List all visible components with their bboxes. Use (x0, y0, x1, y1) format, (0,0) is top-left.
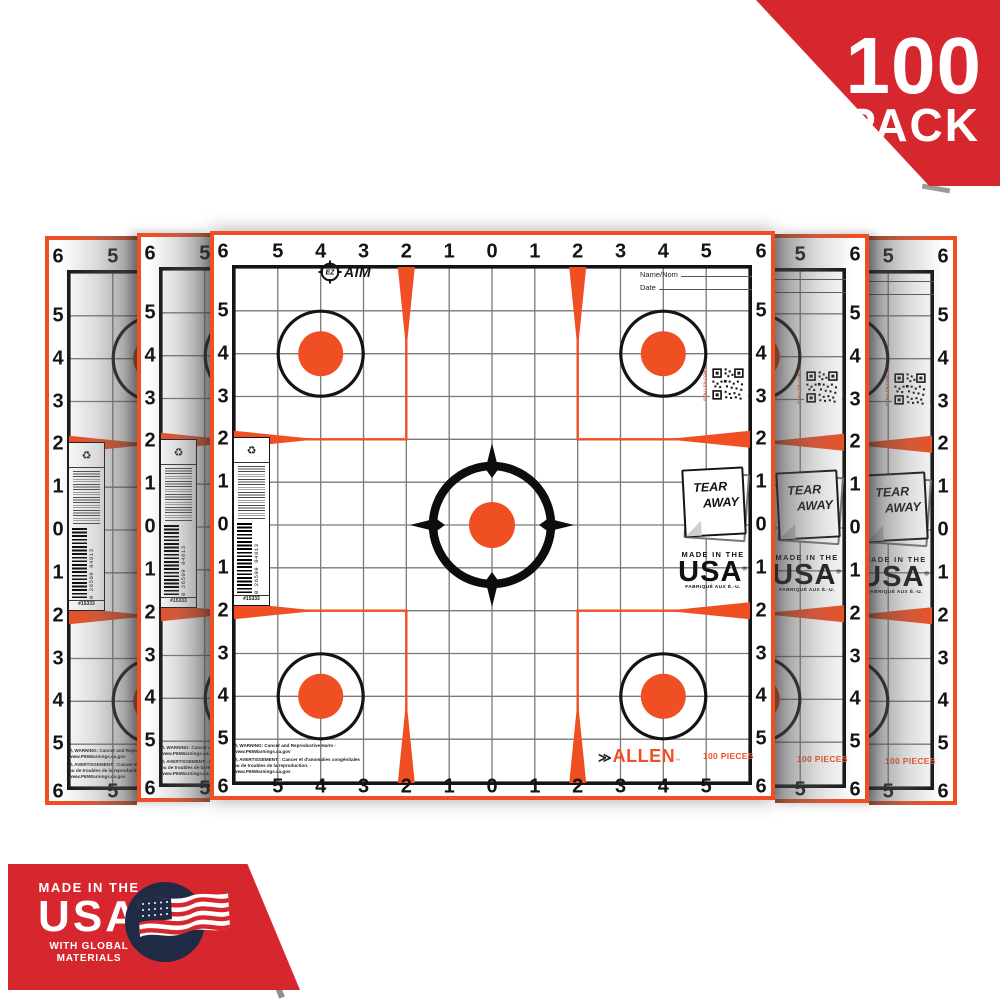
tear-away-graphic: TEAR AWAY (681, 466, 747, 538)
ruler-number: 5 (144, 730, 155, 753)
ruler-number: 3 (937, 647, 948, 670)
fine-print-block (73, 471, 100, 525)
ruler-number: 6 (52, 781, 63, 804)
pack-count: 100 (846, 26, 982, 106)
usa-text: USA (678, 556, 742, 588)
name-field-line (775, 279, 846, 280)
date-field-line (659, 289, 752, 290)
made-in-usa-block: MADE IN THE USA® FABRIQUÉ AUX É.-U. (869, 555, 934, 595)
barcode-label: ♻ 0 26509 04813 #15333 (233, 437, 270, 606)
barcode-icon (237, 523, 252, 594)
ruler-number: 2 (572, 241, 583, 264)
ruler-number: 2 (217, 599, 228, 622)
ruler-number: 1 (849, 559, 860, 582)
ruler-number: 5 (883, 246, 894, 269)
ruler-number: 1 (52, 476, 63, 499)
ruler-number: 2 (572, 776, 583, 799)
tear-away-front-page: TEAR AWAY (681, 466, 746, 537)
ruler-number: 4 (217, 342, 228, 365)
sheet-back-left-outer: EZ AIM Name/Nom Date ♻ 0 26509 04813 #15… (45, 236, 137, 805)
sheet-back-right-inner: EZ AIM Name/Nom Date ♻ 0 26509 04813 #15… (869, 236, 957, 805)
barcode-icon (72, 528, 87, 599)
allen-logo: ≫ ALLEN ™ (598, 746, 680, 767)
ruler-number: 6 (52, 246, 63, 269)
ruler-number: 5 (107, 781, 118, 804)
tear-away-graphic: TEAR AWAY (869, 471, 929, 543)
ruler-number: 5 (849, 731, 860, 754)
ruler-number: 1 (144, 473, 155, 496)
ruler-number: 5 (795, 244, 806, 267)
name-field-line (869, 281, 934, 282)
pack-count-badge: 100 PACK (756, 0, 1000, 186)
ruler-number: 4 (52, 690, 63, 713)
made-in-usa-block: MADE IN THE USA® FABRIQUÉ AUX É.-U. (674, 550, 752, 590)
date-field-label: Date (640, 283, 656, 292)
qr-code-icon (710, 366, 748, 404)
ruler-number: 0 (486, 776, 497, 799)
ruler-number: 2 (401, 241, 412, 264)
ruler-number: 3 (358, 776, 369, 799)
warning-block: ⚠ WARNING: Cancer and Reproductive Harm … (161, 745, 210, 779)
warning-block: ⚠ WARNING: Cancer and Reproductive Harm … (69, 748, 137, 782)
barcode-digits: 0 26509 04813 (88, 528, 95, 599)
ruler-number: 4 (937, 690, 948, 713)
ruler-number: 3 (217, 642, 228, 665)
product-image: 100 PACK MADE IN THE USA WITH GLOBAL MAT… (0, 0, 1000, 1000)
ruler-number: 5 (937, 733, 948, 756)
usa-reg-mark: ® (742, 566, 747, 572)
ruler-number: 1 (217, 471, 228, 494)
ruler-number: 1 (529, 776, 540, 799)
pieces-count-label: 100 PIECES (797, 754, 848, 764)
page-curl-icon (869, 526, 884, 542)
item-number: #15333 (69, 600, 104, 610)
aim-text: AIM (344, 264, 371, 280)
ruler-number: 3 (358, 241, 369, 264)
ruler-number: 6 (217, 776, 228, 799)
warning-text-fr: ⚠ AVERTISSEMENT : Cancer et d'anomalies … (161, 759, 210, 777)
ruler-number: 2 (937, 604, 948, 627)
ruler-number: 3 (755, 385, 766, 408)
ruler-number: 5 (701, 776, 712, 799)
page-curl-icon (779, 524, 796, 540)
ruler-number: 3 (755, 642, 766, 665)
ruler-number: 1 (755, 471, 766, 494)
ruler-number: 2 (217, 428, 228, 451)
ruler-number: 1 (52, 561, 63, 584)
usa-text: USA (869, 561, 924, 593)
ruler-number: 2 (144, 601, 155, 624)
ruler-number: 0 (144, 516, 155, 539)
usa-text: USA (775, 559, 836, 591)
ruler-number: 3 (144, 644, 155, 667)
page-curl-icon (685, 521, 702, 537)
ruler-number: 5 (937, 304, 948, 327)
ruler-number: 4 (849, 345, 860, 368)
ruler-number: 2 (849, 431, 860, 454)
ruler-number: 1 (937, 476, 948, 499)
tear-away-text-2: AWAY (797, 497, 838, 515)
warning-text-en: ⚠ WARNING: Cancer and Reproductive Harm … (69, 748, 137, 760)
name-date-fields: Name/Nom Date (640, 266, 754, 292)
ruler-number: 1 (529, 241, 540, 264)
ruler-number: 4 (849, 688, 860, 711)
warning-text-en: ⚠ WARNING: Cancer and Reproductive Harm … (234, 743, 362, 755)
ruler-number: 3 (615, 776, 626, 799)
usa-reg-mark: ® (924, 571, 929, 577)
ruler-number: 1 (755, 556, 766, 579)
ruler-number: 4 (315, 241, 326, 264)
warning-block: ⚠ WARNING: Cancer and Reproductive Harm … (234, 743, 362, 777)
qr-caption: BYALLEN.COM (703, 370, 707, 401)
ruler-number: 2 (52, 604, 63, 627)
made-in-usa-block: MADE IN THE USA® FABRIQUÉ AUX É.-U. (775, 553, 846, 593)
ruler-number: 2 (144, 430, 155, 453)
ruler-number: 4 (144, 344, 155, 367)
ruler-number: 6 (755, 776, 766, 799)
ruler-number: 6 (144, 243, 155, 266)
recycle-icon: ♻ (234, 438, 269, 463)
ruler-number: 5 (144, 301, 155, 324)
ruler-number: 0 (755, 514, 766, 537)
allen-tm-mark: ™ (675, 758, 680, 764)
pack-label: PACK (845, 102, 980, 148)
fine-print-block (238, 466, 265, 520)
ruler-number: 4 (217, 685, 228, 708)
pieces-count-label: 100 PIECES (885, 756, 936, 766)
warning-text-fr: ⚠ AVERTISSEMENT : Cancer et d'anomalies … (234, 757, 362, 775)
warning-text-en: ⚠ WARNING: Cancer and Reproductive Harm … (161, 745, 210, 757)
name-field-label: Name/Nom (640, 270, 678, 279)
ruler-number: 2 (52, 433, 63, 456)
ruler-number: 5 (52, 733, 63, 756)
center-bullseye (410, 443, 574, 607)
ruler-number: 5 (217, 728, 228, 751)
ruler-number: 3 (937, 390, 948, 413)
barcode-icon (164, 525, 179, 596)
made-in-usa-badge: MADE IN THE USA WITH GLOBAL MATERIALS (8, 864, 300, 990)
ruler-number: 5 (755, 728, 766, 751)
ruler-number: 6 (849, 779, 860, 802)
ruler-number: 1 (444, 241, 455, 264)
ez-text: EZ (326, 270, 336, 277)
date-field-line (775, 292, 846, 293)
allen-chevron-icon: ≫ (598, 750, 612, 766)
tear-away-front-page: TEAR AWAY (869, 471, 929, 542)
ruler-number: 0 (937, 519, 948, 542)
us-flag-icon (108, 867, 238, 979)
ruler-number: 3 (217, 385, 228, 408)
ruler-number: 6 (144, 778, 155, 801)
ruler-number: 2 (755, 428, 766, 451)
name-date-fields: Name/Nom Date (869, 271, 936, 297)
tear-away-front-page: TEAR AWAY (775, 469, 840, 540)
ruler-number: 5 (272, 776, 283, 799)
ruler-number: 5 (795, 779, 806, 802)
ruler-number: 5 (755, 299, 766, 322)
ez-aim-logo: EZ AIM (318, 260, 371, 284)
ruler-number: 5 (199, 778, 210, 801)
ruler-number: 1 (444, 776, 455, 799)
ruler-number: 3 (615, 241, 626, 264)
target-sheet: EZ AIM Name/Nom Date ♻ 0 26509 04813 #15… (775, 234, 869, 803)
ruler-number: 3 (849, 388, 860, 411)
ruler-number: 1 (849, 474, 860, 497)
ruler-number: 5 (52, 304, 63, 327)
tear-away-text-2: AWAY (885, 499, 926, 517)
target-sheet: EZ AIM Name/Nom Date ♻ 0 26509 04813 #15… (210, 231, 775, 800)
qr-caption: BYALLEN.COM (797, 373, 801, 404)
ruler-number: 3 (52, 390, 63, 413)
ruler-number: 5 (849, 302, 860, 325)
fabrique-text: FABRIQUÉ AUX É.-U. (674, 585, 752, 590)
ruler-number: 6 (755, 241, 766, 264)
ruler-number: 5 (217, 299, 228, 322)
ruler-number: 6 (937, 246, 948, 269)
barcode-label: ♻ 0 26509 04813 #15333 (68, 442, 105, 611)
ruler-number: 4 (755, 685, 766, 708)
ruler-number: 3 (144, 387, 155, 410)
target-sheet: EZ AIM Name/Nom Date ♻ 0 26509 04813 #15… (869, 236, 957, 805)
ruler-number: 6 (849, 244, 860, 267)
ruler-number: 3 (52, 647, 63, 670)
ruler-number: 6 (937, 781, 948, 804)
ruler-number: 5 (199, 243, 210, 266)
usa-reg-mark: ® (836, 569, 841, 575)
ruler-number: 2 (849, 602, 860, 625)
name-date-fields: Name/Nom Date (775, 269, 848, 295)
qr-code-icon (804, 369, 842, 407)
warning-text-fr: ⚠ AVERTISSEMENT : Cancer et d'anomalies … (69, 762, 137, 780)
ruler-number: 2 (401, 776, 412, 799)
ruler-number: 0 (849, 517, 860, 540)
ruler-number: 1 (937, 561, 948, 584)
ruler-number: 4 (755, 342, 766, 365)
ruler-number: 5 (107, 246, 118, 269)
qr-code-icon (892, 371, 930, 409)
barcode-digits: 0 26509 04813 (253, 523, 260, 594)
tear-away-graphic: TEAR AWAY (775, 469, 841, 541)
sheet-back-right-outer: EZ AIM Name/Nom Date ♻ 0 26509 04813 #15… (775, 234, 869, 803)
target-sheet: EZ AIM Name/Nom Date ♻ 0 26509 04813 #15… (137, 233, 210, 802)
ruler-number: 4 (315, 776, 326, 799)
ruler-number: 5 (883, 781, 894, 804)
ruler-number: 1 (217, 556, 228, 579)
ruler-number: 0 (486, 241, 497, 264)
sheet-back-left-inner: EZ AIM Name/Nom Date ♻ 0 26509 04813 #15… (137, 233, 210, 802)
item-number: #15333 (234, 595, 269, 605)
ruler-number: 2 (755, 599, 766, 622)
target-grid (232, 265, 752, 785)
recycle-icon: ♻ (69, 443, 104, 468)
ruler-number: 0 (217, 514, 228, 537)
ruler-number: 3 (849, 645, 860, 668)
ruler-number: 4 (658, 241, 669, 264)
ruler-number: 5 (272, 241, 283, 264)
ruler-number: 2 (937, 433, 948, 456)
name-field-line (681, 276, 752, 277)
crosshair-icon: EZ (318, 260, 342, 284)
allen-wordmark: ALLEN (613, 746, 676, 767)
ruler-number: 4 (658, 776, 669, 799)
barcode-digits: 0 26509 04813 (180, 525, 187, 596)
qr-caption: BYALLEN.COM (885, 375, 889, 406)
ruler-number: 1 (144, 558, 155, 581)
sheet-front: EZ AIM Name/Nom Date ♻ 0 26509 04813 #15… (210, 231, 775, 800)
ruler-number: 4 (52, 347, 63, 370)
ruler-number: 6 (217, 241, 228, 264)
recycle-icon: ♻ (161, 440, 196, 465)
ruler-number: 5 (701, 241, 712, 264)
pieces-count-label: 100 PIECES (703, 751, 754, 761)
item-number: #15333 (161, 597, 196, 607)
fine-print-block (165, 468, 192, 522)
ruler-number: 4 (144, 687, 155, 710)
ruler-number: 0 (52, 519, 63, 542)
tear-away-text-2: AWAY (703, 494, 744, 512)
barcode-label: ♻ 0 26509 04813 #15333 (160, 439, 197, 608)
date-field-line (869, 294, 934, 295)
target-sheet: EZ AIM Name/Nom Date ♻ 0 26509 04813 #15… (45, 236, 137, 805)
ruler-number: 4 (937, 347, 948, 370)
